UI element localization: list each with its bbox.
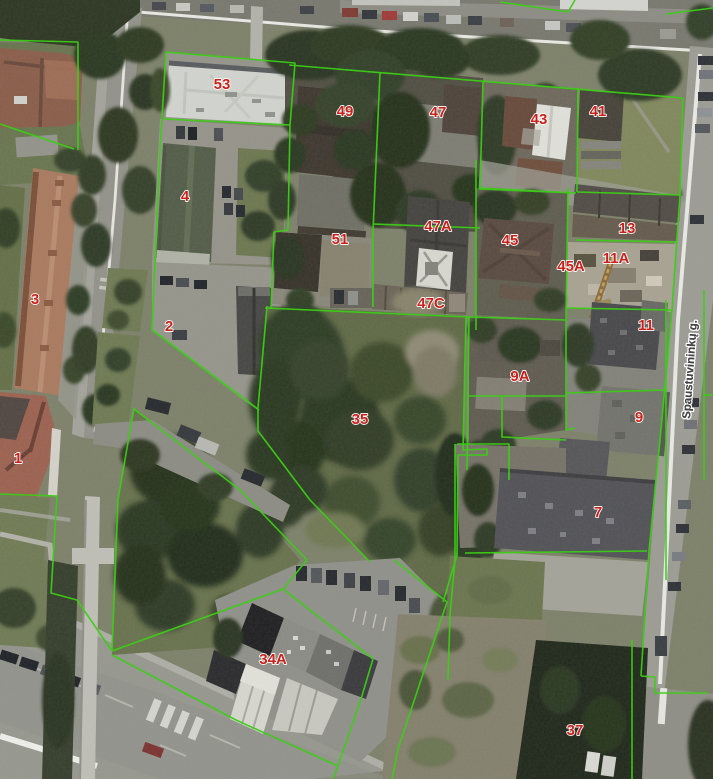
svg-text:9: 9 (635, 409, 643, 426)
svg-text:37: 37 (567, 722, 584, 739)
svg-text:49: 49 (337, 103, 354, 120)
svg-text:51: 51 (332, 231, 349, 248)
svg-text:41: 41 (590, 103, 607, 120)
svg-text:11A: 11A (603, 250, 630, 267)
svg-text:34A: 34A (259, 651, 287, 668)
svg-text:47A: 47A (424, 218, 452, 235)
svg-text:35: 35 (352, 411, 369, 428)
svg-text:1: 1 (14, 450, 22, 467)
svg-text:47C: 47C (417, 295, 445, 312)
svg-text:3: 3 (31, 291, 39, 308)
svg-text:43: 43 (531, 111, 548, 128)
svg-text:53: 53 (214, 76, 231, 93)
svg-text:45A: 45A (557, 258, 585, 275)
svg-text:4: 4 (181, 188, 190, 205)
svg-text:11: 11 (638, 317, 654, 334)
svg-text:47: 47 (430, 104, 447, 121)
svg-text:13: 13 (619, 220, 636, 237)
svg-text:9A: 9A (510, 368, 529, 385)
svg-text:2: 2 (165, 318, 173, 335)
svg-text:7: 7 (594, 504, 602, 521)
svg-text:45: 45 (502, 232, 519, 249)
